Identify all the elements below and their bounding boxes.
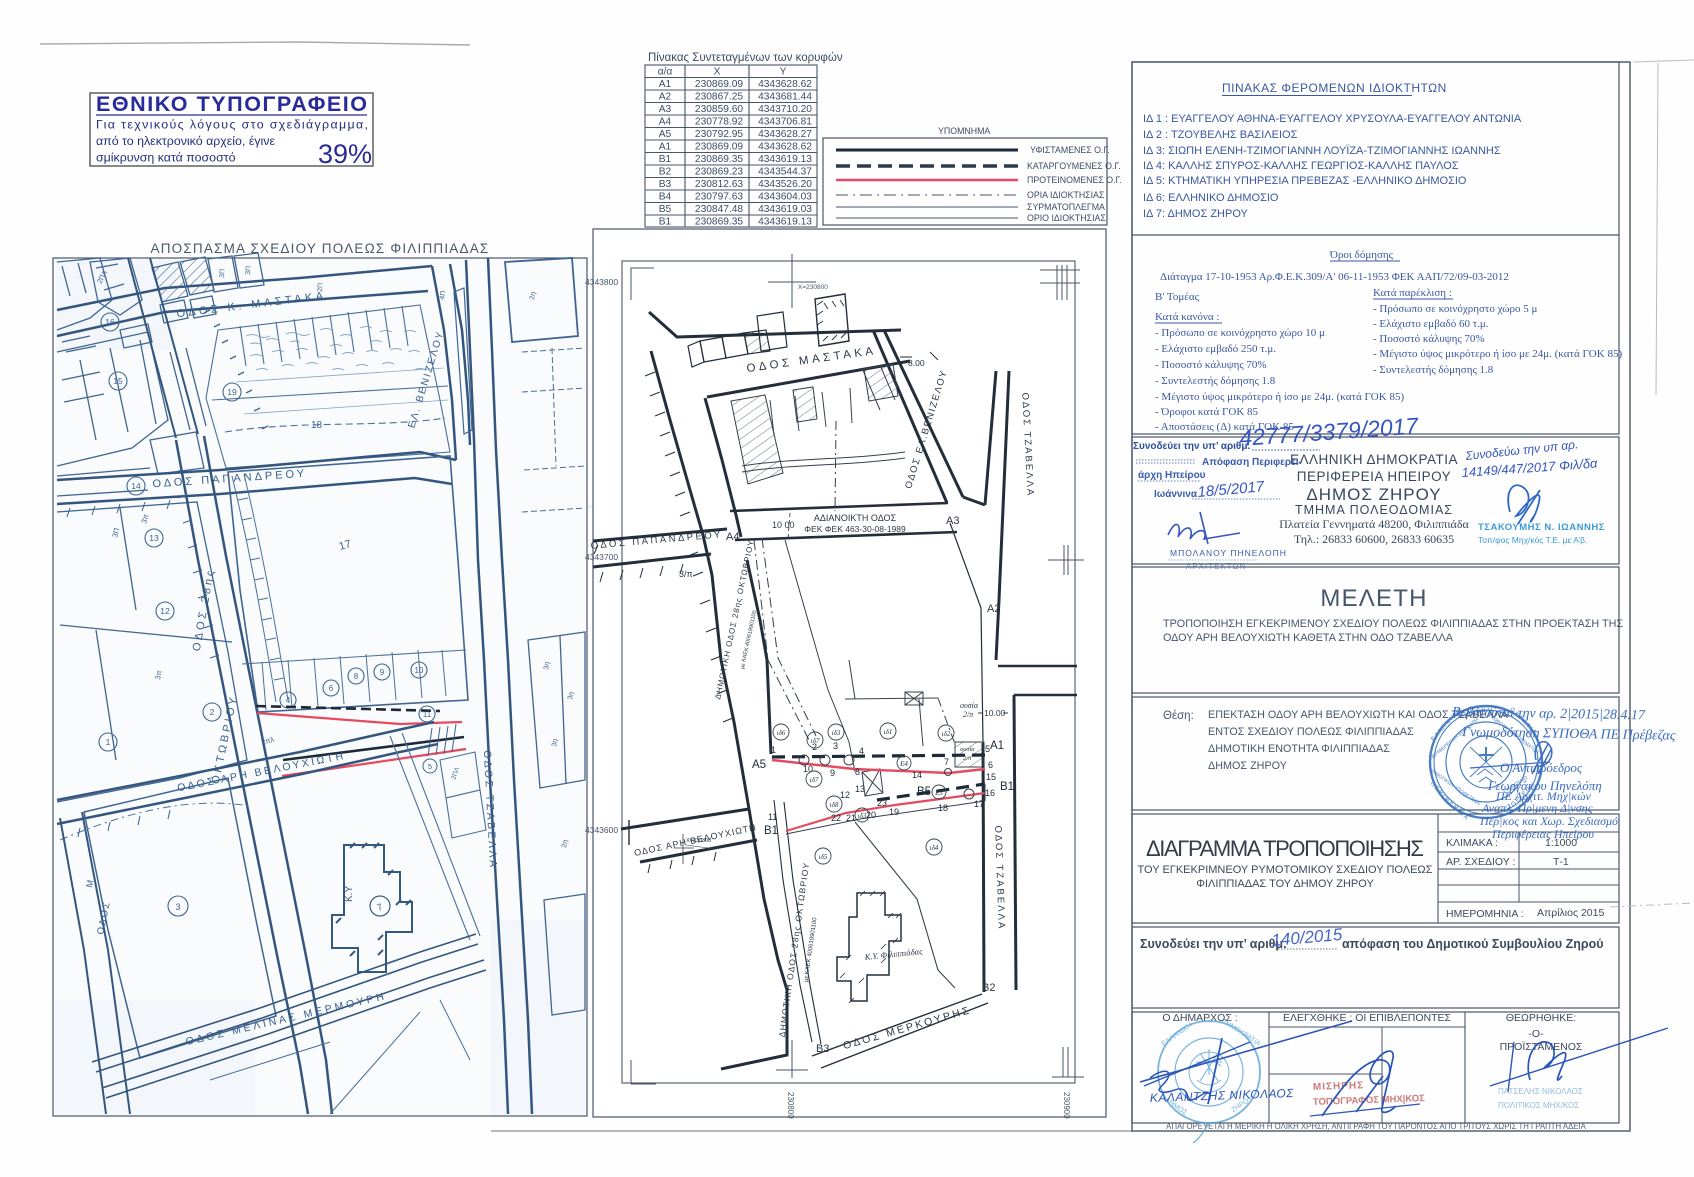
svg-text:8.00: 8.00 [908, 358, 925, 368]
svg-text:2/π: 2/π [963, 710, 974, 719]
svg-text:3Π: 3Π [245, 266, 253, 275]
svg-text:ΑΡΧΙΤΕΚΤΩΝ: ΑΡΧΙΤΕΚΤΩΝ [1186, 562, 1246, 571]
svg-text:Διάταγμα 17-10-1953 Αρ.Φ.Ε.Κ.3: Διάταγμα 17-10-1953 Αρ.Φ.Ε.Κ.309/Α' 06-1… [1160, 271, 1509, 283]
svg-text:ΔΗΜΟΤΙΚΗ ΕΝΟΤΗΤΑ ΦΙΛΙΠΠΙΑΔΑΣ: ΔΗΜΟΤΙΚΗ ΕΝΟΤΗΤΑ ΦΙΛΙΠΠΙΑΔΑΣ [1208, 743, 1390, 755]
svg-text:14: 14 [912, 770, 922, 780]
svg-text:ΑΠΟΣΠΑΣΜΑ ΣΧΕΔΙΟΥ ΠΟΛΕΩΣ ΦΙΛΙΠ: ΑΠΟΣΠΑΣΜΑ ΣΧΕΔΙΟΥ ΠΟΛΕΩΣ ΦΙΛΙΠΠΙΑΔΑΣ [151, 241, 490, 256]
svg-text:B1: B1 [659, 217, 672, 228]
svg-text:7: 7 [944, 757, 949, 767]
svg-text:12: 12 [840, 790, 850, 800]
svg-text:12: 12 [160, 606, 170, 616]
svg-text:ιδ4: ιδ4 [930, 844, 939, 852]
svg-text:- Συντελεστής δόμησης 1.8: - Συντελεστής δόμησης 1.8 [1155, 375, 1276, 387]
svg-text:α/α: α/α [658, 67, 673, 78]
svg-text:X=230800: X=230800 [686, 838, 711, 844]
svg-text:10.00: 10.00 [984, 708, 1006, 718]
svg-text:Θέση:: Θέση: [1163, 710, 1194, 722]
svg-text:ΘΕΩΡΗΘΗΚΕ:: ΘΕΩΡΗΘΗΚΕ: [1506, 1012, 1576, 1024]
svg-text:ουσία: ουσία [960, 746, 975, 753]
svg-text:ΔΗΜΟΣ ΖΗΡΟΥ: ΔΗΜΟΣ ΖΗΡΟΥ [1208, 760, 1287, 772]
svg-text:4343800: 4343800 [585, 277, 618, 287]
svg-text:Απόφαση Περιφερει-: Απόφαση Περιφερει- [1202, 457, 1302, 468]
svg-text:ΤΟΥ ΕΓΚΕΚΡΙΜΝΕΟΥ ΡΥΜΟΤΟΜΙΚΟΥ Σ: ΤΟΥ ΕΓΚΕΚΡΙΜΝΕΟΥ ΡΥΜΟΤΟΜΙΚΟΥ ΣΧΕΔΙΟΥ ΠΟΛ… [1138, 864, 1433, 876]
svg-text:ΤΡΟΠΟΠΟΙΗΣΗ ΕΓΚΕΚΡΙΜΕΝΟΥ ΣΧΕΔΙ: ΤΡΟΠΟΠΟΙΗΣΗ ΕΓΚΕΚΡΙΜΕΝΟΥ ΣΧΕΔΙΟΥ ΠΟΛΕΩΣ … [1163, 618, 1623, 630]
svg-text:Ιωάννινα: Ιωάννινα [1154, 489, 1198, 500]
svg-text:ΥΠΟΜΝΗΜΑ: ΥΠΟΜΝΗΜΑ [938, 126, 990, 136]
svg-text:ΕΛΛΗΝΙΚΗ ΔΗΜΟΚΡΑΤΙΑ: ΕΛΛΗΝΙΚΗ ΔΗΜΟΚΡΑΤΙΑ [1290, 452, 1458, 467]
svg-text:Πίνακας Συντεταγμένων των κορυ: Πίνακας Συντεταγμένων των κορυφών [648, 52, 843, 64]
svg-text:A5: A5 [659, 129, 672, 140]
svg-text:Y: Y [780, 67, 787, 78]
svg-text:- Μέγιστο ύψος μικρότερο ή ίσο: - Μέγιστο ύψος μικρότερο ή ίσο με 24μ. (… [1373, 348, 1622, 360]
svg-text:Ο Αντιπρόεδρος: Ο Αντιπρόεδρος [1500, 760, 1583, 775]
svg-text:230792.95: 230792.95 [695, 129, 743, 140]
svg-text:ΚΛΙΜΑΚΑ :: ΚΛΙΜΑΚΑ : [1446, 837, 1498, 849]
svg-text:ιδ3: ιδ3 [858, 812, 867, 820]
svg-text:ιδ2: ιδ2 [942, 730, 951, 738]
svg-text:3: 3 [833, 741, 838, 751]
svg-text:ΙΔ 6: ΕΛΛΗΝΙΚΟ ΔΗΜΟΣΙΟ: ΙΔ 6: ΕΛΛΗΝΙΚΟ ΔΗΜΟΣΙΟ [1143, 192, 1279, 204]
svg-text:ΑΠΑΓΟΡΕΥΕΤΑΙ Η ΜΕΡΙΚΗ Η ΟΛΙΚΗ: ΑΠΑΓΟΡΕΥΕΤΑΙ Η ΜΕΡΙΚΗ Η ΟΛΙΚΗ ΧΡΗΣΗ, ΑΝΤ… [1166, 1122, 1587, 1131]
svg-text:4343628.62: 4343628.62 [758, 79, 812, 90]
svg-text:230869.35: 230869.35 [695, 217, 743, 228]
svg-text:Ε4: Ε4 [899, 760, 908, 768]
svg-text:20: 20 [866, 810, 876, 820]
svg-text:ΟΡΙΑ ΙΔΙΟΚΤΗΣΙΑΣ: ΟΡΙΑ ΙΔΙΟΚΤΗΣΙΑΣ [1027, 190, 1105, 200]
svg-text:8: 8 [354, 672, 359, 681]
svg-text:18: 18 [311, 420, 323, 431]
svg-text:A1: A1 [990, 740, 1004, 752]
svg-text:Κ.Υ: Κ.Υ [344, 886, 355, 902]
svg-text:230778.92: 230778.92 [695, 117, 743, 128]
svg-text:16: 16 [105, 317, 115, 327]
svg-text:4343681.44: 4343681.44 [758, 92, 812, 103]
svg-text:8: 8 [855, 767, 860, 777]
svg-text:ΣΥΡΜΑΤΟΠΛΕΓΜΑ: ΣΥΡΜΑΤΟΠΛΕΓΜΑ [1027, 202, 1105, 212]
svg-text:15: 15 [986, 772, 996, 782]
svg-text:A4: A4 [659, 117, 672, 128]
svg-text:B2: B2 [982, 982, 995, 994]
svg-text:ΟΡΙΟ ΙΔΙΟΚΤΗΣΙΑΣ: ΟΡΙΟ ΙΔΙΟΚΤΗΣΙΑΣ [1027, 213, 1106, 223]
svg-text:A1: A1 [659, 79, 672, 90]
svg-text:ΜΙΣΗΡΗΣ: ΜΙΣΗΡΗΣ [1313, 1080, 1365, 1093]
svg-text:4343544.37: 4343544.37 [758, 167, 812, 178]
svg-text:ΜΕΛΕΤΗ: ΜΕΛΕΤΗ [1320, 585, 1427, 612]
svg-text:4: 4 [286, 696, 291, 705]
svg-text:- Πρόσωπο σε κοινόχρηστο χώρο: - Πρόσωπο σε κοινόχρηστο χώρο 5 μ [1373, 303, 1537, 315]
svg-text:Τηλ.: 26833 60600, 26833 60635: Τηλ.: 26833 60600, 26833 60635 [1294, 532, 1454, 546]
svg-text:230859.60: 230859.60 [695, 104, 743, 115]
svg-text:ΥΦΙΣΤΑΜΕΝΕΣ Ο.Γ.: ΥΦΙΣΤΑΜΕΝΕΣ Ο.Γ. [1030, 145, 1110, 155]
svg-text:B4: B4 [659, 192, 672, 203]
svg-text:230797.63: 230797.63 [695, 192, 743, 203]
svg-text:ουσία: ουσία [960, 701, 979, 710]
svg-text:5: 5 [428, 762, 432, 771]
svg-text:A1: A1 [659, 142, 672, 153]
svg-text:14: 14 [131, 481, 141, 491]
svg-text:4343700: 4343700 [585, 552, 618, 562]
svg-text:ΦΙΛΙΠΠΙΑΔΑΣ ΤΟΥ ΔΗΜΟΥ ΖΗΡΟΥ: ΦΙΛΙΠΠΙΑΔΑΣ ΤΟΥ ΔΗΜΟΥ ΖΗΡΟΥ [1196, 878, 1374, 890]
svg-text:39%: 39% [318, 139, 372, 169]
svg-text:2Π: 2Π [317, 283, 325, 292]
svg-text:ΙΔ 4: ΚΑΛΛΗΣ ΣΠΥΡΟΣ-ΚΑΛΛΗΣ ΓΕΩ: ΙΔ 4: ΚΑΛΛΗΣ ΣΠΥΡΟΣ-ΚΑΛΛΗΣ ΓΕΩΡΓΙΟΣ-ΚΑΛΛ… [1143, 160, 1459, 172]
svg-text:A2: A2 [987, 603, 1000, 615]
svg-text:Κατά κανόνα :: Κατά κανόνα : [1155, 311, 1219, 323]
svg-text:A2: A2 [659, 92, 672, 103]
svg-text:Ε3: Ε3 [934, 789, 943, 797]
svg-text:ΑΔΙΑΝΟΙΚΤΗ ΟΔΟΣ: ΑΔΙΑΝΟΙΚΤΗ ΟΔΟΣ [814, 513, 897, 523]
svg-text:- Πρόσωπο σε κοινόχρηστο χώρο: - Πρόσωπο σε κοινόχρηστο χώρο 10 μ [1155, 327, 1325, 339]
svg-text:ΙΔ 5: ΚΤΗΜΑΤΙΚΗ ΥΠΗΡΕΣΙΑ ΠΡΕΒΕ: ΙΔ 5: ΚΤΗΜΑΤΙΚΗ ΥΠΗΡΕΣΙΑ ΠΡΕΒΕΖΑΣ -ΕΛΛΗΝ… [1143, 175, 1467, 187]
svg-text:10 00: 10 00 [772, 520, 795, 530]
svg-text:ΠΡΟΤΕΙΝΟΜΕΝΕΣ Ο.Γ.: ΠΡΟΤΕΙΝΟΜΕΝΕΣ Ο.Γ. [1027, 175, 1122, 185]
svg-text:A3: A3 [946, 515, 959, 527]
svg-text:Συνοδεύει την υπ’ αριθμ.: Συνοδεύει την υπ’ αριθμ. [1140, 937, 1287, 951]
svg-text:B1: B1 [659, 154, 672, 165]
svg-text:23: 23 [877, 798, 887, 808]
svg-text:ΠΙΝΑΚΑΣ ΦΕΡΟΜΕΝΩΝ ΙΔΙΟΚΤΗΤΩΝ: ΠΙΝΑΚΑΣ ΦΕΡΟΜΕΝΩΝ ΙΔΙΟΚΤΗΤΩΝ [1222, 81, 1447, 95]
svg-text:ΕΛΕΓΧΘΗΚΕ : ΟΙ ΕΠΙΒΛΕΠΟΝΤΕΣ: ΕΛΕΓΧΘΗΚΕ : ΟΙ ΕΠΙΒΛΕΠΟΝΤΕΣ [1283, 1012, 1452, 1024]
svg-text:3Π: 3Π [219, 269, 227, 278]
svg-text:- Ελάχιστο εμβαδό 60 τ.μ.: - Ελάχιστο εμβαδό 60 τ.μ. [1373, 318, 1489, 330]
svg-text:A3: A3 [659, 104, 672, 115]
svg-text:ΜΠΟΛΑΝΟΥ ΠΗΝΕΛΟΠΗ: ΜΠΟΛΑΝΟΥ ΠΗΝΕΛΟΠΗ [1170, 548, 1287, 558]
svg-text:4343706.81: 4343706.81 [758, 117, 812, 128]
svg-text:Όροι δόμησης: Όροι δόμησης [1329, 249, 1394, 261]
svg-text:19: 19 [227, 387, 237, 397]
svg-text:Συνοδεύει την υπ’ αριθμ.: Συνοδεύει την υπ’ αριθμ. [1133, 441, 1250, 452]
svg-text:4343710.20: 4343710.20 [758, 104, 812, 115]
svg-text:ΤΜΗΜΑ ΠΟΛΕΟΔΟΜΙΑΣ: ΤΜΗΜΑ ΠΟΛΕΟΔΟΜΙΑΣ [1295, 503, 1453, 517]
svg-text:-Ο-: -Ο- [1528, 1028, 1544, 1040]
svg-text:4343619.13: 4343619.13 [758, 154, 812, 165]
svg-text:18: 18 [938, 803, 948, 813]
svg-text:15: 15 [113, 376, 123, 386]
svg-text:ιδ3: ιδ3 [832, 729, 841, 737]
svg-text:Απρίλιος 2015: Απρίλιος 2015 [1537, 907, 1604, 919]
svg-text:ΠΕΡΙΦΕΡΕΙΑ ΗΠΕΙΡΟΥ: ΠΕΡΙΦΕΡΕΙΑ ΗΠΕΙΡΟΥ [1297, 469, 1451, 484]
svg-text:Αναπλ. Πρ|μενη Δ|νσης: Αναπλ. Πρ|μενη Δ|νσης [1481, 801, 1593, 815]
svg-text:13: 13 [855, 784, 865, 794]
svg-text:ΙΔ 7: ΔΗΜΟΣ ΖΗΡΟΥ: ΙΔ 7: ΔΗΜΟΣ ΖΗΡΟΥ [1143, 208, 1249, 220]
svg-text:13: 13 [149, 533, 159, 543]
svg-text:230869.23: 230869.23 [695, 167, 743, 178]
svg-text:4343526.20: 4343526.20 [758, 179, 812, 190]
svg-text:A5: A5 [752, 759, 766, 771]
svg-text:230869.09: 230869.09 [695, 79, 743, 90]
svg-text:2: 2 [210, 707, 215, 717]
svg-text:6: 6 [988, 760, 993, 770]
svg-text:230800: 230800 [786, 1092, 795, 1119]
svg-text:4: 4 [859, 746, 864, 756]
svg-text:10: 10 [415, 666, 424, 675]
svg-text:- Ποσοστό κάλυψης 70%: - Ποσοστό κάλυψης 70% [1373, 333, 1485, 345]
svg-text:230900: 230900 [1062, 1092, 1071, 1119]
svg-text:4343619.03: 4343619.03 [758, 204, 812, 215]
svg-text:2η: 2η [529, 291, 537, 300]
svg-text:σμίκρυνση κατά ποσοστό: σμίκρυνση κατά ποσοστό [96, 151, 236, 165]
svg-text:ιδ6: ιδ6 [777, 729, 786, 737]
svg-text:ΠΟΛΙΤΙΚΟΣ ΜΗΧ/ΚΟΣ: ΠΟΛΙΤΙΚΟΣ ΜΗΧ/ΚΟΣ [1498, 1101, 1579, 1110]
svg-text:2η: 2η [561, 839, 569, 848]
svg-text:230867.25: 230867.25 [695, 92, 743, 103]
svg-text:ΟΔΟΥ ΑΡΗ ΒΕΛΟΥΧΙΩΤΗ ΚΑΘΕΤΑ ΣΤΗ: ΟΔΟΥ ΑΡΗ ΒΕΛΟΥΧΙΩΤΗ ΚΑΘΕΤΑ ΣΤΗΝ ΟΔΟ ΤΖΑΒ… [1163, 632, 1454, 644]
svg-text:- Μέγιστο ύψος μικρότερο ή ίσο: - Μέγιστο ύψος μικρότερο ή ίσο με 24μ. (… [1155, 391, 1404, 403]
svg-text:ΔΙΑΓΡΑΜΜΑ ΤΡΟΠΟΠΟΙΗΣΗΣ: ΔΙΑΓΡΑΜΜΑ ΤΡΟΠΟΠΟΙΗΣΗΣ [1146, 836, 1424, 861]
svg-text:230812.63: 230812.63 [695, 179, 743, 190]
svg-text:ΕΘΝΙΚΟ ΤΥΠΟΓΡΑΦΕΙΟ: ΕΘΝΙΚΟ ΤΥΠΟΓΡΑΦΕΙΟ [96, 92, 367, 116]
svg-text:B3: B3 [816, 1043, 829, 1055]
svg-text:Πλατεία Γεννηματά 48200, Φιλιπ: Πλατεία Γεννηματά 48200, Φιλιππιάδα [1279, 517, 1469, 531]
svg-text:ιδ1: ιδ1 [884, 728, 893, 736]
svg-text:Τοπ/φος Μηχ/κός Τ.Ε. με Α’β.: Τοπ/φος Μηχ/κός Τ.Ε. με Α’β. [1478, 535, 1587, 545]
svg-text:ΦΕΚ ΦΕΚ 463-30-08-1989: ΦΕΚ ΦΕΚ 463-30-08-1989 [804, 524, 906, 534]
svg-text:19: 19 [889, 807, 899, 817]
svg-text:ιδ5: ιδ5 [819, 853, 828, 861]
svg-text:- Συντελεστής δόμησης 1.8: - Συντελεστής δόμησης 1.8 [1373, 364, 1494, 376]
svg-text:3η: 3η [567, 691, 575, 700]
svg-text:4343628.27: 4343628.27 [758, 129, 812, 140]
svg-text:Τ-1: Τ-1 [1553, 856, 1569, 868]
svg-text:B3: B3 [659, 179, 672, 190]
svg-text:ιδ8: ιδ8 [830, 801, 839, 809]
svg-text:230869.09: 230869.09 [695, 142, 743, 153]
svg-text:3: 3 [175, 902, 180, 912]
svg-text:ΙΔ 2 : ΤΖΟΥΒΕΛΗΣ ΒΑΣΙΛΕΙΟΣ: ΙΔ 2 : ΤΖΟΥΒΕΛΗΣ ΒΑΣΙΛΕΙΟΣ [1143, 129, 1298, 141]
svg-text:ΔΗΜΟΣ ΖΗΡΟΥ: ΔΗΜΟΣ ΖΗΡΟΥ [1306, 485, 1441, 504]
svg-text:B5: B5 [659, 204, 672, 215]
svg-text:4343600: 4343600 [585, 825, 618, 835]
svg-text:B5: B5 [917, 786, 931, 798]
svg-text:B2: B2 [659, 167, 672, 178]
svg-text:ΚΑΤΑΡΓΟΥΜΕΝΕΣ Ο.Γ.: ΚΑΤΑΡΓΟΥΜΕΝΕΣ Ο.Γ. [1027, 161, 1121, 171]
svg-text:X=230800: X=230800 [798, 284, 828, 291]
svg-text:3/π: 3/π [679, 569, 693, 579]
svg-text:1: 1 [106, 737, 111, 747]
svg-text:ΗΜΕΡΟΜΗΝΙΑ :: ΗΜΕΡΟΜΗΝΙΑ : [1446, 908, 1524, 920]
svg-text:ΙΔ 1 : ΕΥΑΓΓΕΛΟΥ ΑΘΗΝΑ-ΕΥΑΓΓΕΛ: ΙΔ 1 : ΕΥΑΓΓΕΛΟΥ ΑΘΗΝΑ-ΕΥΑΓΓΕΛΟΥ ΧΡΥΣΟΥΛ… [1143, 113, 1522, 125]
svg-text:απόφαση του Δημοτικού Συμβουλί: απόφαση του Δημοτικού Συμβουλίου Ζηρού [1342, 937, 1604, 951]
svg-text:ΤΣΑΚΟΥΜΗΣ Ν. ΙΩΑΝΝΗΣ: ΤΣΑΚΟΥΜΗΣ Ν. ΙΩΑΝΝΗΣ [1478, 522, 1605, 533]
svg-text:3η: 3η [551, 738, 559, 747]
svg-text:4343628.62: 4343628.62 [758, 142, 812, 153]
svg-text:6: 6 [329, 684, 334, 693]
svg-text:9: 9 [830, 768, 835, 778]
svg-text:άρχη Ηπείρου: άρχη Ηπείρου [1138, 470, 1206, 481]
svg-text:Για τεχνικούς λόγους στο σχεδι: Για τεχνικούς λόγους στο σχεδιάγραμμα, [96, 118, 368, 132]
svg-text:Περιφέρειας Ηπείρου: Περιφέρειας Ηπείρου [1491, 827, 1594, 841]
svg-text:10: 10 [803, 764, 813, 774]
svg-text:- Ποσοστό κάλυψης 70%: - Ποσοστό κάλυψης 70% [1155, 359, 1267, 371]
svg-text:17: 17 [974, 799, 984, 809]
svg-text:21: 21 [846, 813, 856, 823]
svg-text:ΕΝΤΟΣ ΣΧΕΔΙΟΥ ΠΟΛΕΩΣ ΦΙΛΙΠΠΙΑΔ: ΕΝΤΟΣ ΣΧΕΔΙΟΥ ΠΟΛΕΩΣ ΦΙΛΙΠΠΙΑΔΑΣ [1208, 726, 1414, 738]
svg-text:B1: B1 [1000, 781, 1014, 793]
svg-text:από το ηλεκτρονικό αρχείο, έγι: από το ηλεκτρονικό αρχείο, έγινε [96, 134, 275, 148]
svg-text:ΙΔ 3: ΣΙΩΠΗ ΕΛΕΝΗ-ΤΖΙΜΟΓΙΑΝΝΗ: ΙΔ 3: ΣΙΩΠΗ ΕΛΕΝΗ-ΤΖΙΜΟΓΙΑΝΝΗ ΛΟΥΪΖΑ-ΤΖΙ… [1143, 145, 1501, 157]
svg-text:Περ|κος και Χωρ. Σχεδιασμό: Περ|κος και Χωρ. Σχεδιασμό [1479, 814, 1618, 828]
svg-text:1: 1 [771, 745, 776, 755]
svg-text:ΠΑΤΣΕΛΗΣ ΝΙΚΟΛΑΟΣ: ΠΑΤΣΕΛΗΣ ΝΙΚΟΛΑΟΣ [1498, 1087, 1583, 1096]
svg-text:22: 22 [831, 813, 841, 823]
svg-text:ιδ7: ιδ7 [811, 737, 820, 745]
svg-text:4343619.13: 4343619.13 [758, 217, 812, 228]
svg-text:X: X [714, 67, 721, 78]
svg-text:- Όροφοι κατά ΓΟΚ 85: - Όροφοι κατά ΓΟΚ 85 [1155, 406, 1259, 418]
svg-text:230847.48: 230847.48 [695, 204, 743, 215]
svg-text:230869.35: 230869.35 [695, 154, 743, 165]
svg-text:16: 16 [985, 788, 995, 798]
svg-text:Β' Τομέας: Β' Τομέας [1155, 291, 1200, 303]
svg-text:ΑΡ. ΣΧΕΔΙΟΥ :: ΑΡ. ΣΧΕΔΙΟΥ : [1446, 856, 1515, 868]
svg-text:3π: 3π [153, 670, 163, 681]
svg-text:- Ελάχιστο εμβαδό 250 τ.μ.: - Ελάχιστο εμβαδό 250 τ.μ. [1155, 343, 1276, 355]
svg-text:3η: 3η [543, 661, 551, 670]
svg-text:9: 9 [380, 668, 385, 677]
svg-text:B1: B1 [764, 825, 778, 837]
svg-text:Κατά παρέκλιση :: Κατά παρέκλιση : [1373, 287, 1452, 299]
svg-text:ιδ7: ιδ7 [810, 776, 819, 784]
svg-text:4343604.03: 4343604.03 [758, 192, 812, 203]
svg-text:11: 11 [768, 812, 777, 822]
